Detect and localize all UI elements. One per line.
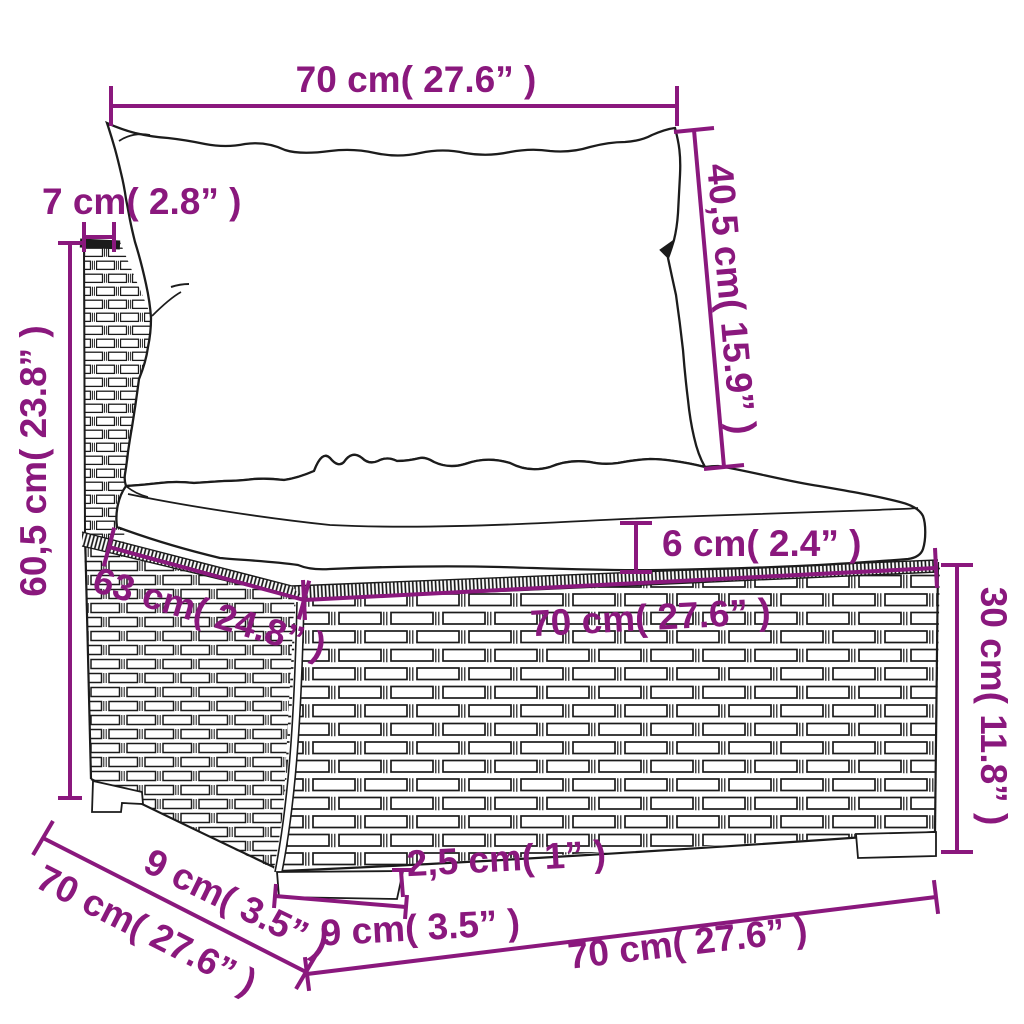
svg-text:70 cm( 27.6” ): 70 cm( 27.6” )	[566, 908, 810, 976]
svg-text:7 cm( 2.8” ): 7 cm( 2.8” )	[42, 181, 241, 222]
svg-text:60,5 cm( 23.8” ): 60,5 cm( 23.8” )	[13, 325, 54, 596]
svg-text:6 cm( 2.4” ): 6 cm( 2.4” )	[662, 523, 861, 564]
svg-text:30 cm( 11.8” ): 30 cm( 11.8” )	[973, 587, 1014, 826]
svg-text:9 cm( 3.5” ): 9 cm( 3.5” )	[320, 901, 521, 953]
svg-text:70 cm( 27.6” ): 70 cm( 27.6” )	[296, 59, 537, 100]
